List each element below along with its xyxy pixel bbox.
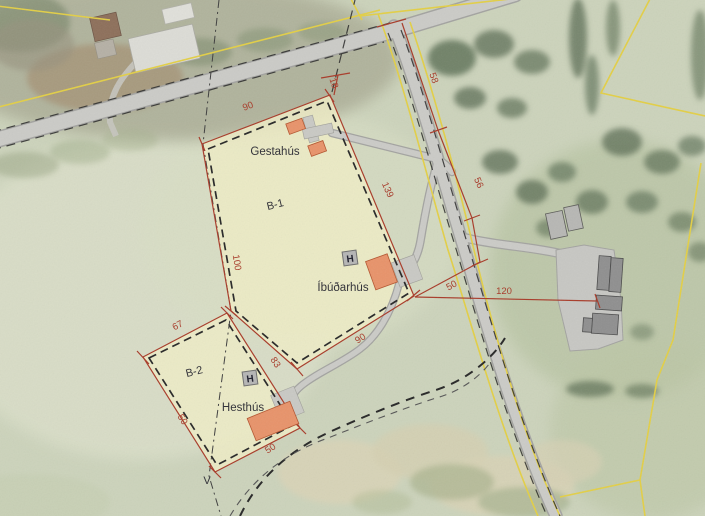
site-plan-map: H H Gestahús Íbúðarhús Hesthús B-1 B-2 V… (0, 0, 705, 516)
map-canvas: H H Gestahús Íbúðarhús Hesthús B-1 B-2 V… (0, 0, 705, 516)
texture-overlay (0, 0, 705, 516)
